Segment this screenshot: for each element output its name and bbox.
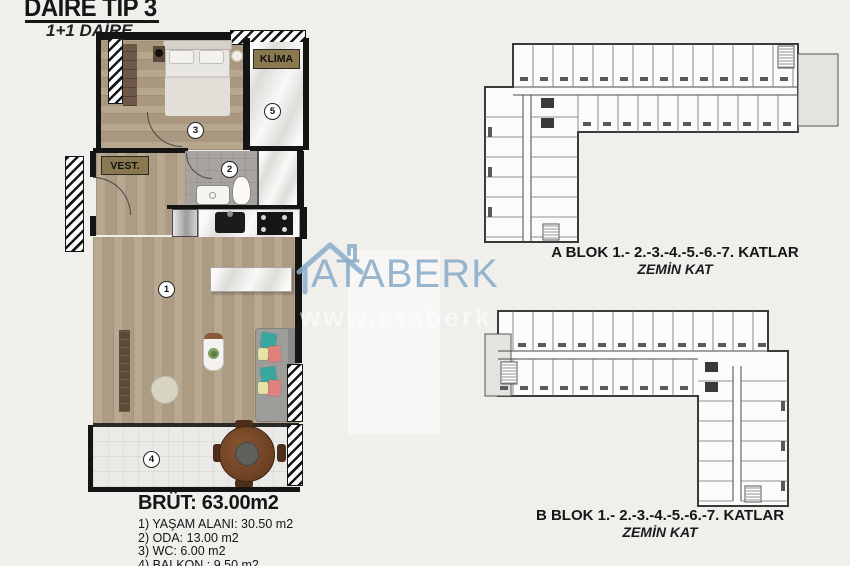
table-tray [235, 442, 259, 466]
wall-bedroom-klima [243, 38, 250, 150]
a-blok-floor-label: ZEMİN KAT [505, 261, 845, 277]
toilet-icon [232, 176, 251, 205]
wall-right-kitchen [300, 207, 307, 239]
wall-left-balcony [88, 425, 93, 487]
legend-item: 3) WC: 6.00 m2 [138, 545, 293, 559]
bed-headboard [163, 40, 232, 50]
vest-label: VEST. [101, 156, 149, 175]
room-number-living: 1 [158, 281, 175, 298]
pillow-left [169, 50, 194, 64]
chair-icon [277, 444, 286, 462]
apartment-plan: 3 KLİMA 5 VEST. 2 [85, 30, 317, 493]
shower-marble [257, 151, 297, 207]
plant-icon [211, 351, 217, 357]
room-number-bedroom: 3 [187, 122, 204, 139]
pillow-coral [267, 345, 282, 362]
console-cabinet [119, 330, 130, 412]
fridge-icon [172, 209, 198, 237]
b-blok-caption: B BLOK 1.- 2.-3.-4.-5.-6.-7. KATLAR [490, 507, 830, 524]
house-icon [296, 238, 366, 296]
wall-entry-upper [90, 151, 96, 177]
wall-entry-lower [90, 216, 96, 236]
watermark-url: www.ataberk [300, 302, 492, 333]
a-blok-caption: A BLOK 1.- 2.-3.-4.-5.-6.-7. KATLAR [505, 244, 845, 261]
drain-icon [209, 192, 216, 199]
a-blok-plan [483, 32, 845, 245]
room-number-bath: 2 [221, 161, 238, 178]
b-blok-floor-label: ZEMİN KAT [490, 524, 830, 540]
legend-item: 2) ODA: 13.00 m2 [138, 532, 293, 546]
faucet-icon [227, 211, 233, 217]
burner-icon [282, 227, 287, 232]
legend-item: 4) BALKON : 9.50 m2 [138, 559, 293, 566]
burner-icon [282, 215, 287, 220]
lamp-left-icon [155, 49, 163, 57]
wall-hatch-right-living [287, 364, 303, 422]
room-number-balcony: 4 [143, 451, 160, 468]
wall-left-bedroom [96, 32, 101, 150]
room-number-klima-balcony: 5 [264, 103, 281, 120]
pillow-coral [267, 379, 282, 396]
wall-hatch-right-balcony [287, 424, 303, 486]
floorplan-sheet: DAİRE TİP 3 1+1 DAİRE 3 KLİMA 5 VEST. [0, 0, 850, 566]
side-table-edge [204, 333, 223, 339]
wall-hatch-left-exterior [65, 156, 84, 252]
area-legend: BRÜT: 63.00m2 1) YAŞAM ALANI: 30.50 m2 2… [138, 492, 293, 566]
legend-item: 1) YAŞAM ALANI: 30.50 m2 [138, 518, 293, 532]
pillow-yellow [258, 382, 268, 394]
bed-blanket [165, 76, 230, 116]
wall-right-bath [297, 151, 304, 207]
klima-label: KLİMA [253, 49, 300, 69]
gross-area-label: BRÜT: 63.00m2 [138, 492, 293, 515]
burner-icon [261, 227, 266, 232]
pillow-yellow [258, 348, 268, 360]
wall-right-klima [303, 38, 309, 150]
burner-icon [261, 215, 266, 220]
b-blok-plan [483, 296, 835, 509]
wardrobe [123, 44, 137, 106]
lamp-right-icon [231, 50, 243, 62]
kitchen-island [210, 267, 292, 292]
shaft-hatch-bedroom [108, 38, 123, 104]
pillow-right [199, 50, 224, 64]
